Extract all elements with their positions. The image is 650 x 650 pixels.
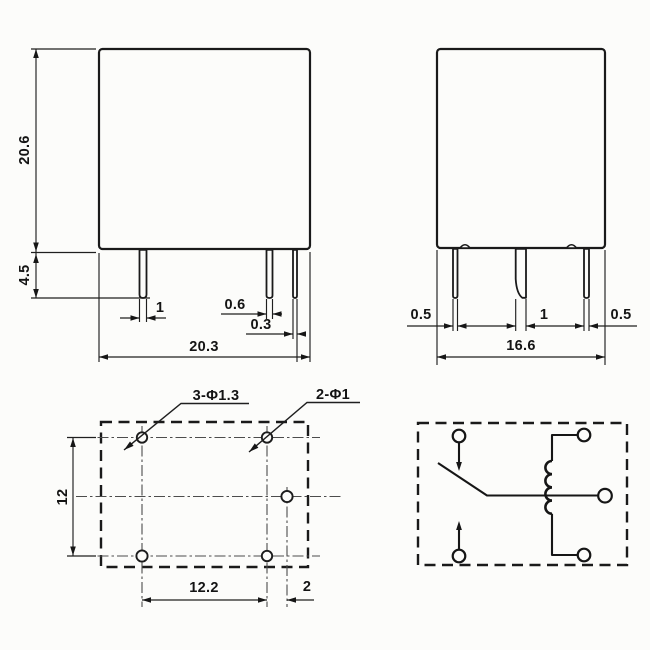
- dim-contact-pin-gap: 0.3: [250, 317, 271, 333]
- drawing-svg: 20.6 4.5 1 0.6 0.3 20.3: [0, 0, 650, 650]
- side-pin-right: [584, 249, 589, 298]
- terminal-no: [453, 550, 466, 563]
- terminal-coil-bottom: [578, 549, 591, 562]
- switch-symbol: [438, 443, 598, 550]
- coil-pin-front: [140, 250, 147, 298]
- hole-leaders: [124, 403, 360, 453]
- terminal-coil-top: [578, 429, 591, 442]
- terminal-common: [598, 489, 612, 503]
- dim-row-pitch: 12: [55, 489, 71, 506]
- case-notch-right: [567, 245, 577, 248]
- relay-body-side-outline: [437, 49, 605, 248]
- label-pin-holes: 2-Φ1: [316, 387, 350, 403]
- side-pin-left: [453, 249, 458, 298]
- terminal-nc: [453, 430, 466, 443]
- dim-body-width: 20.3: [189, 339, 218, 355]
- bottom-dimension-lines: [67, 438, 314, 603]
- front-view: 20.6 4.5 1 0.6 0.3 20.3: [17, 49, 310, 362]
- side-view: 0.5 1 0.5 16.6: [407, 49, 637, 365]
- dim-body-height: 20.6: [17, 135, 33, 164]
- dim-middle-pin-width: 1: [540, 307, 548, 323]
- dim-right-pin-width: 0.5: [610, 307, 631, 323]
- side-pins: [453, 249, 589, 298]
- contact-pin-front-b: [293, 250, 297, 298]
- relay-dimensional-drawing: 20.6 4.5 1 0.6 0.3 20.3: [0, 0, 650, 650]
- dim-body-depth: 16.6: [506, 338, 535, 354]
- dim-left-pin-width: 0.5: [410, 307, 431, 323]
- side-pin-middle: [516, 249, 526, 298]
- bottom-view: 3-Φ1.3 2-Φ1 12 12.2 2: [55, 387, 360, 607]
- schematic-outline: [418, 423, 627, 565]
- hole-middle-right: [281, 491, 292, 502]
- relay-body-front-outline: [99, 49, 310, 249]
- dim-common-pin-offset: 2: [303, 579, 311, 595]
- front-pins: [140, 250, 298, 298]
- case-notch-left: [460, 245, 470, 248]
- schematic-view: [418, 423, 627, 565]
- dim-pin-length: 4.5: [17, 264, 33, 285]
- label-mount-holes: 3-Φ1.3: [193, 388, 240, 404]
- dim-column-pitch: 12.2: [189, 580, 218, 596]
- contact-pin-front-a: [267, 250, 273, 298]
- dim-coil-pin-width: 1: [156, 300, 164, 316]
- hole-bottom-left: [136, 550, 147, 561]
- hole-bottom-right: [262, 551, 272, 561]
- dim-contact-pin-width: 0.6: [224, 297, 245, 313]
- front-dimension-lines: [31, 49, 310, 362]
